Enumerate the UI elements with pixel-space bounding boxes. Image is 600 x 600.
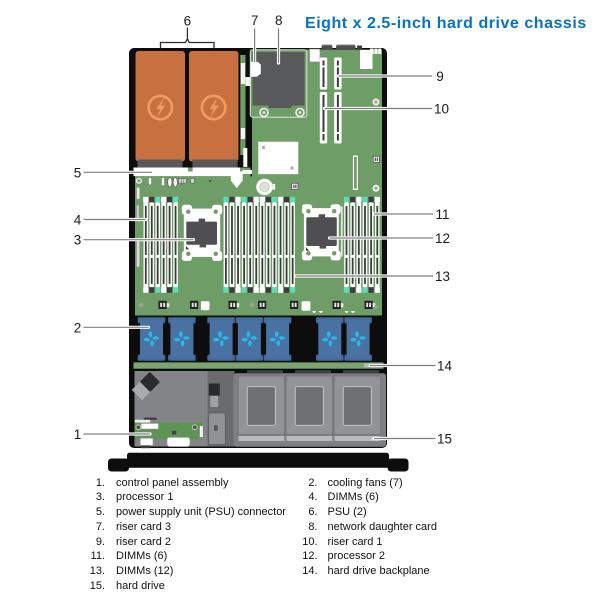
svg-text:14: 14	[437, 359, 453, 374]
svg-text:10: 10	[434, 102, 449, 117]
svg-text:2: 2	[74, 320, 82, 335]
svg-text:6: 6	[184, 14, 192, 29]
svg-text:4: 4	[74, 213, 82, 228]
svg-text:12: 12	[435, 231, 450, 246]
svg-text:15: 15	[437, 432, 452, 447]
svg-text:8: 8	[275, 13, 283, 28]
svg-text:3: 3	[74, 233, 82, 248]
svg-text:11: 11	[435, 207, 449, 222]
svg-text:13: 13	[435, 269, 450, 284]
svg-text:9: 9	[436, 69, 444, 84]
svg-text:7: 7	[251, 13, 259, 28]
svg-text:1: 1	[74, 427, 82, 442]
svg-text:5: 5	[74, 165, 82, 180]
